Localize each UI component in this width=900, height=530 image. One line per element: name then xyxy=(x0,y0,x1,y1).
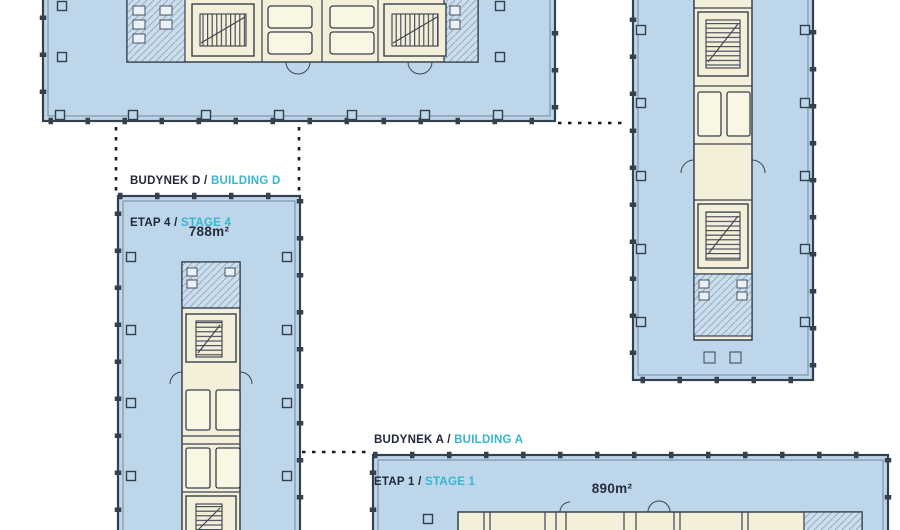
stair xyxy=(698,12,748,76)
stair xyxy=(698,204,748,268)
toilets-east xyxy=(444,0,478,62)
building-north-wing xyxy=(43,0,555,121)
building-d-label: BUDYNEK D / BUILDING D ETAP 4 / STAGE 4 xyxy=(130,146,281,258)
toilets xyxy=(804,512,862,530)
stair xyxy=(384,4,446,56)
stair xyxy=(192,4,254,56)
building-a-label-line2: ETAP 1 / STAGE 1 xyxy=(374,475,523,489)
building-d-label-line1: BUDYNEK D / BUILDING D xyxy=(130,174,281,188)
core xyxy=(681,0,765,363)
building-a-name-pl: BUDYNEK A / xyxy=(374,434,454,446)
building-a-stage-en: STAGE 1 xyxy=(425,476,475,488)
site-plan: BUDYNEK D / BUILDING D ETAP 4 / STAGE 4 … xyxy=(0,0,900,530)
building-d-area-label: 788m² xyxy=(159,224,259,239)
building-d-name-en: BUILDING D xyxy=(211,175,281,187)
building-d-name-pl: BUDYNEK D / xyxy=(130,175,211,187)
core xyxy=(170,262,252,530)
building-a-name-en: BUILDING A xyxy=(454,434,523,446)
stair xyxy=(186,496,236,530)
building-a-stage-pl: ETAP 1 / xyxy=(374,476,425,488)
building-a-label: BUDYNEK A / BUILDING A ETAP 1 / STAGE 1 xyxy=(374,405,523,517)
stair xyxy=(186,314,236,362)
building-a-label-line1: BUDYNEK A / BUILDING A xyxy=(374,433,523,447)
building-east-wing xyxy=(633,0,813,380)
building-a-area-label: 890m² xyxy=(562,481,662,496)
